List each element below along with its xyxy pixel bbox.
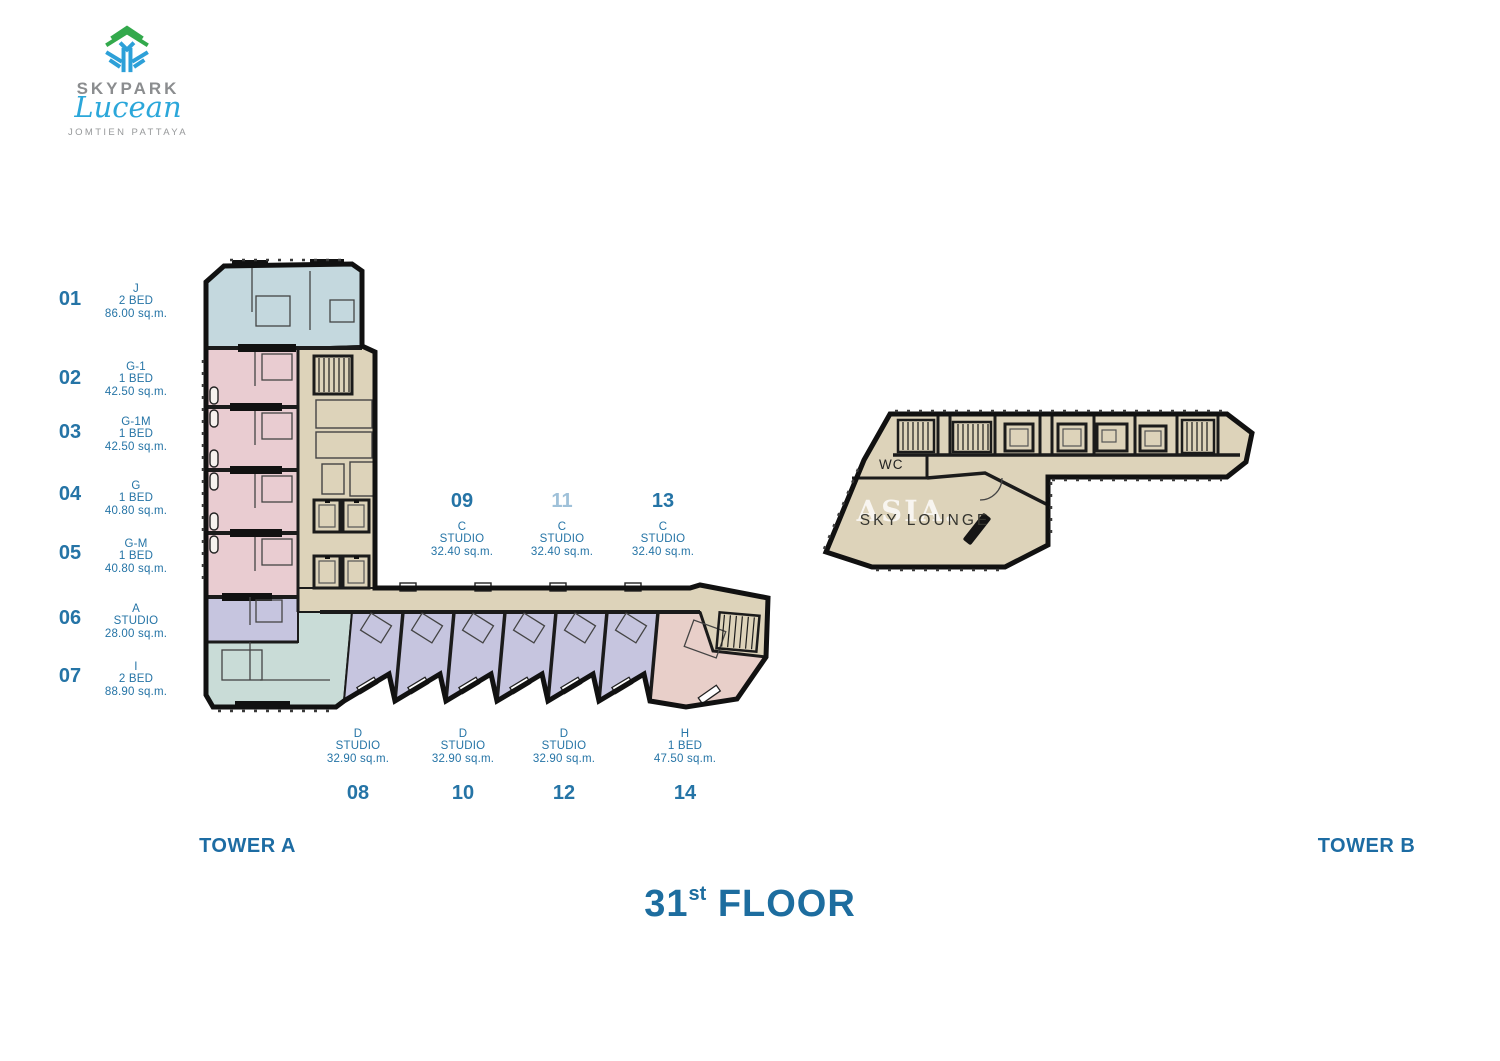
unit-label-12: DSTUDIO32.90 sq.m. (514, 728, 614, 765)
tower-b-title: TOWER B (1294, 835, 1439, 858)
unit-no-09: 09 (422, 491, 502, 511)
tower-a-plan (203, 259, 768, 711)
unit-no-08: 08 (318, 783, 398, 803)
core-vertical (298, 346, 375, 588)
unit-label-10: DSTUDIO32.90 sq.m. (413, 728, 513, 765)
unit-label-07: I2 BED88.90 sq.m. (86, 661, 186, 698)
unit-label-04: G1 BED40.80 sq.m. (86, 480, 186, 517)
unit-no-10: 10 (423, 783, 503, 803)
unit-label-13: CSTUDIO32.40 sq.m. (613, 521, 713, 558)
unit-label-05: G-M1 BED40.80 sq.m. (86, 538, 186, 575)
unit-label-01: J2 BED86.00 sq.m. (86, 283, 186, 320)
unit-label-08: DSTUDIO32.90 sq.m. (308, 728, 408, 765)
logo-blue-strokes (106, 43, 148, 72)
unit-label-06: ASTUDIO28.00 sq.m. (86, 603, 186, 640)
brand-logo-icon (101, 18, 153, 76)
unit-label-09: CSTUDIO32.40 sq.m. (412, 521, 512, 558)
unit-label-11: CSTUDIO32.40 sq.m. (512, 521, 612, 558)
unit-no-11: 11 (522, 491, 602, 511)
unit-01-J (206, 264, 362, 348)
unit-no-12: 12 (524, 783, 604, 803)
unit-label-02: G-11 BED42.50 sq.m. (86, 361, 186, 398)
sky-lounge-label: SKY LOUNGE (845, 512, 1005, 530)
brand-script: Lucean (58, 90, 198, 124)
wc-label: WC (879, 457, 919, 472)
unit-label-14: H1 BED47.50 sq.m. (635, 728, 735, 765)
tower-b-plan (824, 411, 1252, 570)
brand-location: JOMTIEN PATTAYA (58, 127, 198, 138)
logo-green-chevrons (106, 28, 148, 45)
unit-06-A (207, 597, 298, 642)
tower-a-title: TOWER A (175, 835, 320, 858)
floor-title: 31st FLOOR (600, 883, 900, 926)
floor-plan-page: SKYPARK Lucean JOMTIEN PATTAYA 01 J2 BED… (0, 0, 1500, 1061)
unit-no-13: 13 (623, 491, 703, 511)
unit-label-03: G-1M1 BED42.50 sq.m. (86, 416, 186, 453)
unit-no-14: 14 (645, 783, 725, 803)
